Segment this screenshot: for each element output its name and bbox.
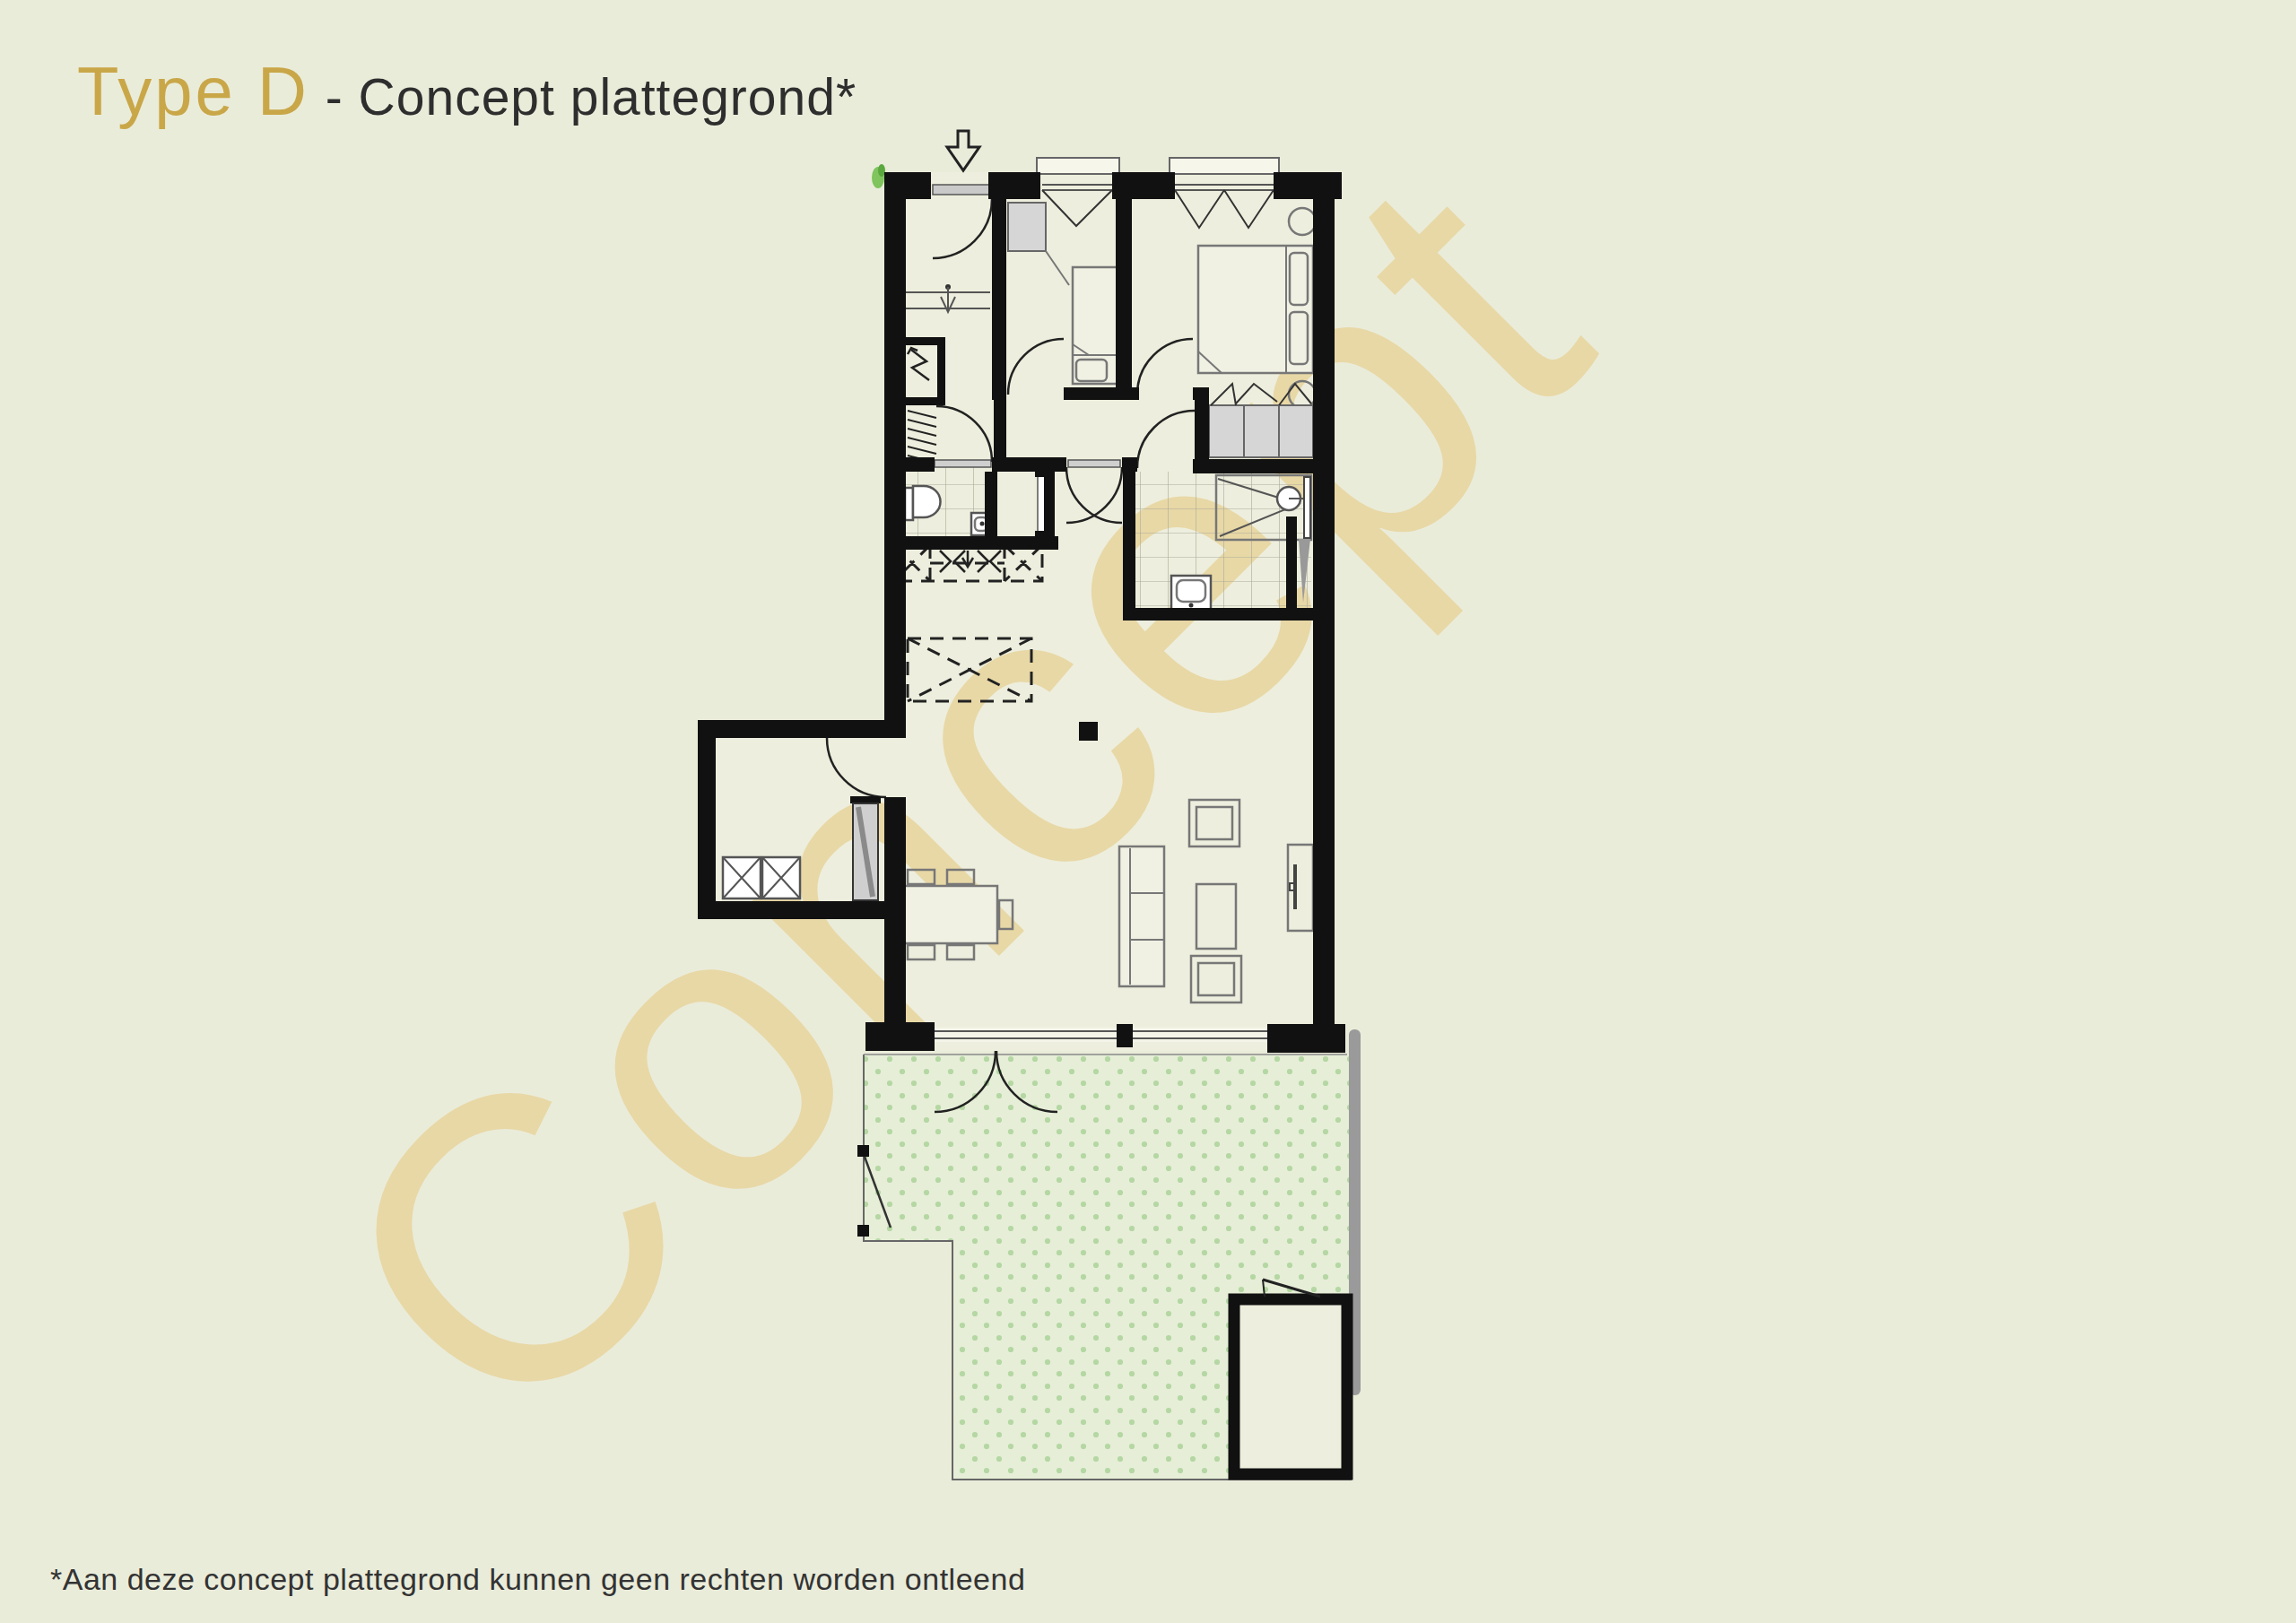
disclaimer-footnote: *Aan deze concept plattegrond kunnen gee… [50,1562,1025,1597]
door-threshold [1068,460,1120,467]
toilet-cistern [905,488,913,520]
sofa [1119,846,1164,986]
bedroom-2-double-bed [1198,246,1313,373]
bedroom-1-closet [1008,203,1046,251]
cabinet-cap [850,796,881,803]
floor-plan-svg: Concept [0,0,2296,1623]
south-glazing-band [935,1028,1267,1042]
closet-door [1038,475,1045,533]
washbasin-drain [1189,603,1194,608]
toilet-icon [913,486,941,517]
column [1079,722,1098,741]
entrance-threshold [933,185,990,195]
shower-glass [1304,477,1310,538]
bedroom-1-window-frame [1037,158,1119,174]
entrance-arrow-icon [947,131,979,170]
gate-post-bottom [857,1225,869,1237]
page-title: Type D - Concept plattegrond* [77,52,857,130]
garden-shed [1229,1280,1352,1480]
basin-drain [980,522,985,526]
bedroom-2-window-frame [1170,158,1279,174]
title-type-label: Type D [77,52,309,130]
title-subtitle: - Concept plattegrond* [326,67,857,126]
dining-table [897,886,997,943]
toilet-threshold [935,460,991,467]
plant-icon [878,164,885,177]
